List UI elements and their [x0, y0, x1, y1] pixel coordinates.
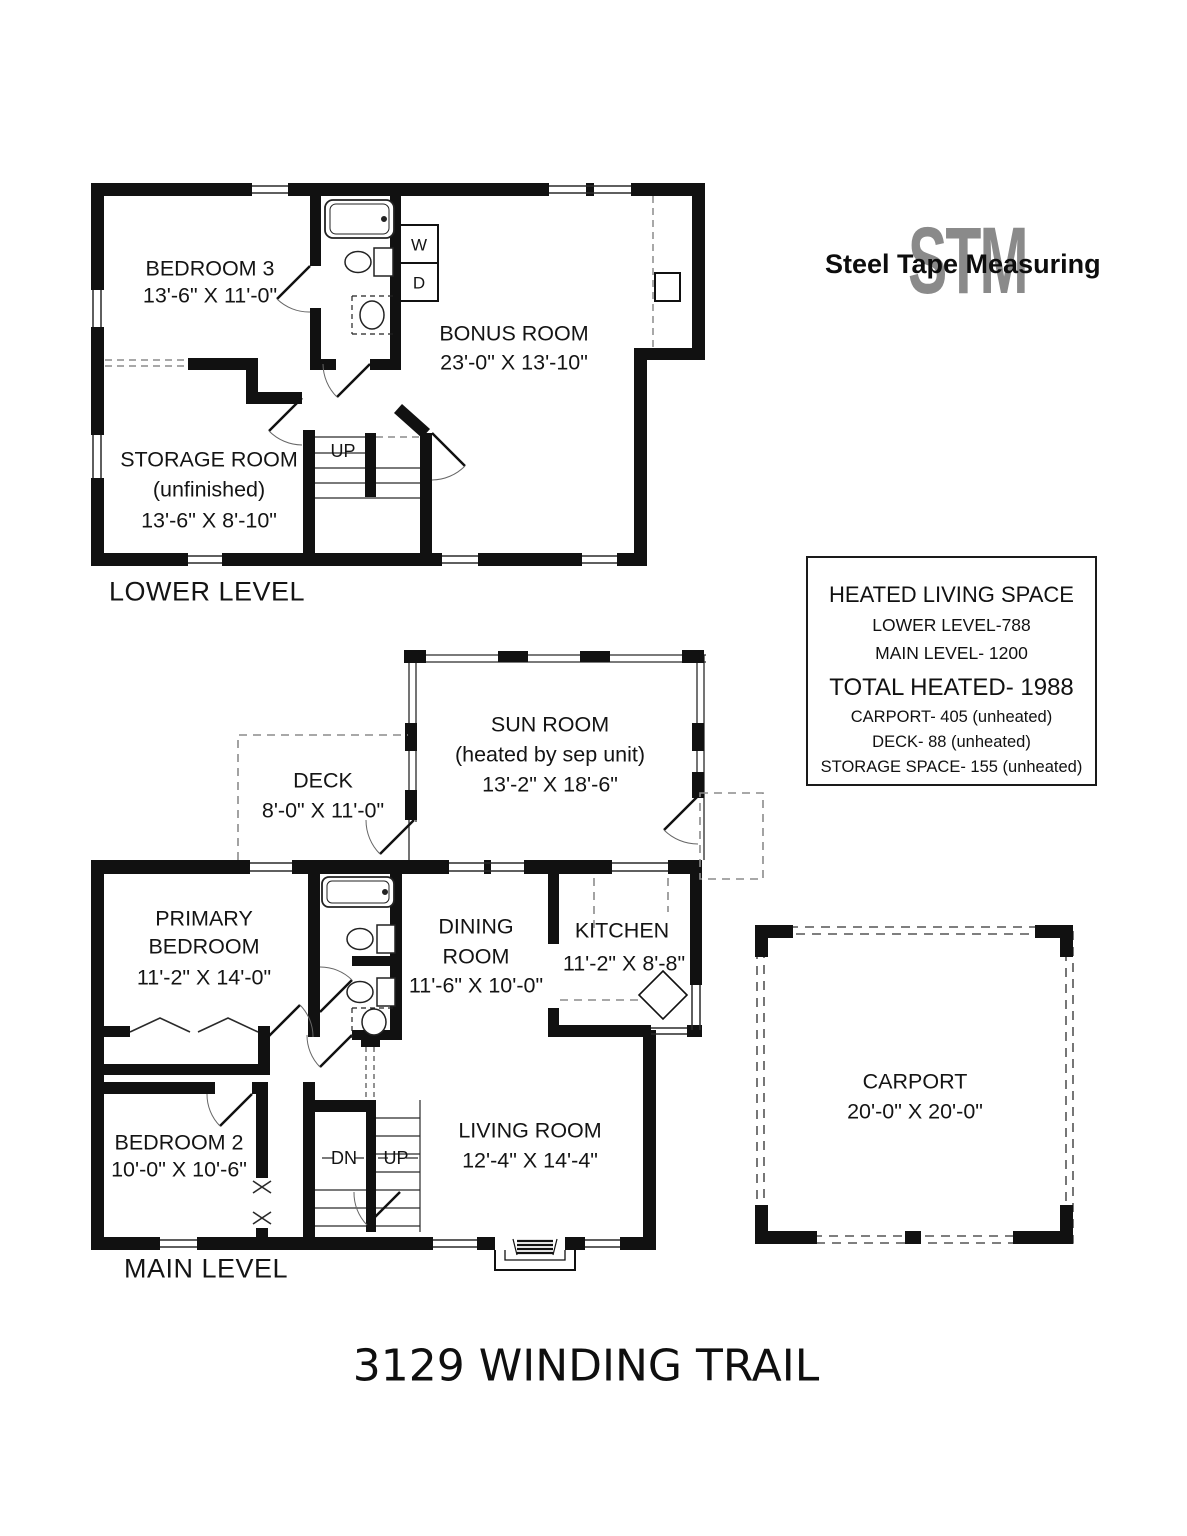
- room-sub-sunroom: (heated by sep unit): [455, 744, 645, 766]
- tub-drain: [383, 890, 388, 895]
- front-steps: [495, 1239, 575, 1270]
- room-label-bonus: BONUS ROOM: [439, 323, 588, 345]
- room-dims-dining: 11'-6" X 10'-0": [409, 975, 543, 997]
- summary-main: MAIN LEVEL- 1200: [808, 643, 1095, 664]
- landing-outline: [700, 793, 763, 879]
- hall-opening: [366, 1047, 374, 1100]
- tub-drain: [382, 217, 387, 222]
- summary-storage: STORAGE SPACE- 155 (unheated): [808, 758, 1095, 777]
- room-label-deck: DECK: [293, 770, 353, 792]
- room-label-kitchen: KITCHEN: [575, 920, 669, 942]
- bonus-wall-box: [655, 273, 680, 301]
- toilet-tank: [377, 925, 395, 953]
- room-dims-kitchen: 11'-2" X 8'-8": [563, 953, 685, 975]
- summary-deck: DECK- 88 (unheated): [808, 733, 1095, 752]
- room-dims-bedroom3: 13'-6" X 11'-0": [143, 285, 277, 307]
- summary-carport: CARPORT- 405 (unheated): [808, 708, 1095, 727]
- lower-bathroom-fixtures: [325, 200, 394, 334]
- stairs-up-label-lower: UP: [330, 442, 355, 460]
- toilet-bowl-2: [347, 982, 373, 1003]
- room-label-bedroom2: BEDROOM 2: [114, 1132, 243, 1154]
- caption-main-level: MAIN LEVEL: [124, 1256, 288, 1283]
- room-dims-bedroom2: 10'-0" X 10'-6": [111, 1159, 247, 1181]
- logo-name: Steel Tape Measuring: [825, 249, 1101, 280]
- room-label-dining-2: ROOM: [443, 946, 510, 968]
- washer-label: W: [411, 237, 427, 254]
- summary-title: HEATED LIVING SPACE: [808, 582, 1095, 608]
- room-dims-sunroom: 13'-2" X 18'-6": [482, 774, 618, 796]
- main-doors: [207, 796, 698, 1225]
- room-dims-living: 12'-4" X 14'-4": [462, 1150, 598, 1172]
- page-title: 3129 WINDING TRAIL: [353, 1341, 819, 1392]
- kitchen-sink-diamond: [639, 971, 687, 1019]
- summary-total: TOTAL HEATED- 1988: [808, 674, 1095, 702]
- lower-level-windows: [93, 186, 631, 563]
- room-sub-storage: (unfinished): [153, 479, 265, 501]
- sink: [362, 1009, 386, 1035]
- caption-lower-level: LOWER LEVEL: [109, 579, 305, 606]
- closet-doors: [130, 1018, 271, 1224]
- stairs-up-label-main: UP: [383, 1149, 408, 1167]
- toilet-tank: [374, 248, 393, 276]
- sink: [360, 301, 384, 329]
- room-label-primary-2: BEDROOM: [148, 936, 259, 958]
- toilet-tank-2: [377, 978, 395, 1006]
- dryer-label: D: [413, 275, 425, 292]
- room-dims-primary: 11'-2" X 14'-0": [137, 967, 271, 989]
- floorplan-page: STM Steel Tape Measuring BEDROOM 3 13'-6…: [0, 0, 1187, 1536]
- room-dims-deck: 8'-0" X 11'-0": [262, 800, 384, 822]
- heated-space-summary: HEATED LIVING SPACE LOWER LEVEL-788 MAIN…: [806, 556, 1097, 786]
- summary-lower: LOWER LEVEL-788: [808, 615, 1095, 636]
- room-label-primary-1: PRIMARY: [155, 908, 253, 930]
- room-label-sunroom: SUN ROOM: [491, 714, 609, 736]
- room-label-storage: STORAGE ROOM: [120, 449, 298, 471]
- room-label-bedroom3: BEDROOM 3: [145, 258, 274, 280]
- room-label-living: LIVING ROOM: [458, 1120, 601, 1142]
- room-label-carport: CARPORT: [863, 1071, 968, 1093]
- room-dims-storage: 13'-6" X 8'-10": [141, 510, 277, 532]
- room-dims-bonus: 23'-0" X 13'-10": [440, 352, 588, 374]
- toilet-bowl: [347, 929, 373, 950]
- room-dims-carport: 20'-0" X 20'-0": [847, 1101, 983, 1123]
- room-label-dining-1: DINING: [438, 916, 513, 938]
- toilet-bowl: [345, 252, 371, 273]
- stairs-dn-label-main: DN: [331, 1149, 357, 1167]
